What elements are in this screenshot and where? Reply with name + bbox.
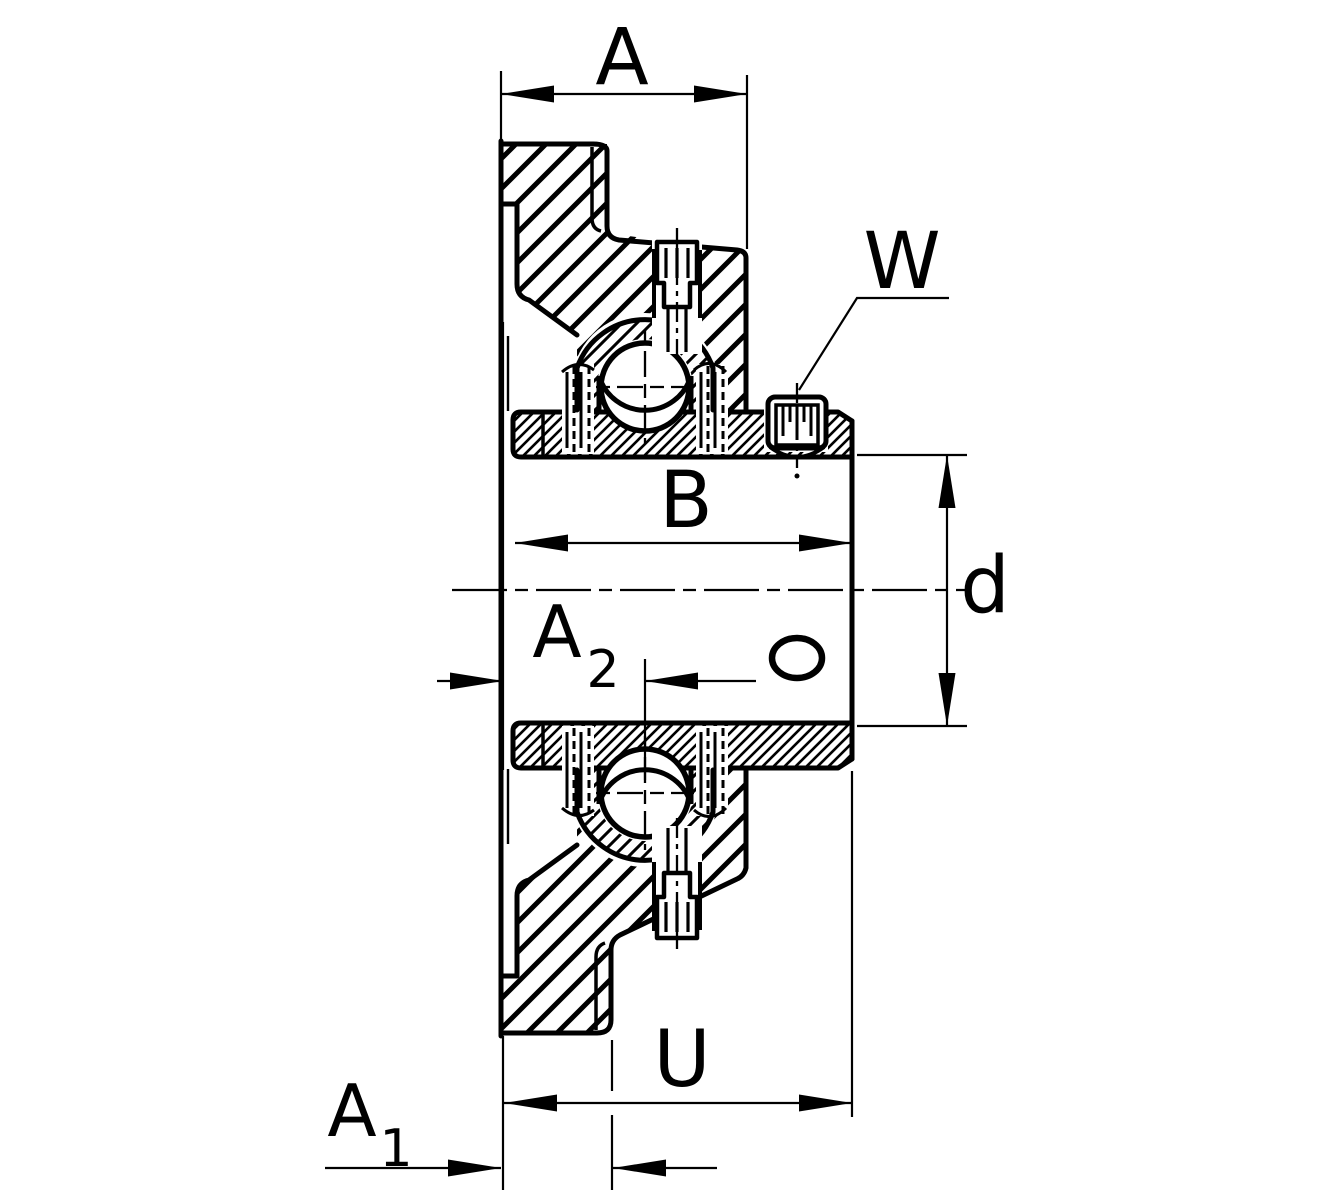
drawing-canvas: A W B d A 2 U A 1 (0, 0, 1330, 1200)
dim-label-W: W (863, 217, 940, 307)
dim-label-U: U (653, 1015, 710, 1105)
dim-label-A2-sub: 2 (586, 640, 619, 700)
dim-label-B: B (659, 456, 713, 546)
dim-label-A2-base: A (532, 590, 581, 674)
flanged-bearing-unit-drawing: A W B d A 2 U A 1 (0, 0, 1330, 1200)
dim-label-d: d (960, 541, 1010, 631)
dim-label-A1-base: A (327, 1069, 376, 1153)
dim-label-A: A (595, 13, 648, 103)
dim-label-A1-sub: 1 (379, 1119, 412, 1179)
collar-screw-hole (772, 638, 822, 678)
